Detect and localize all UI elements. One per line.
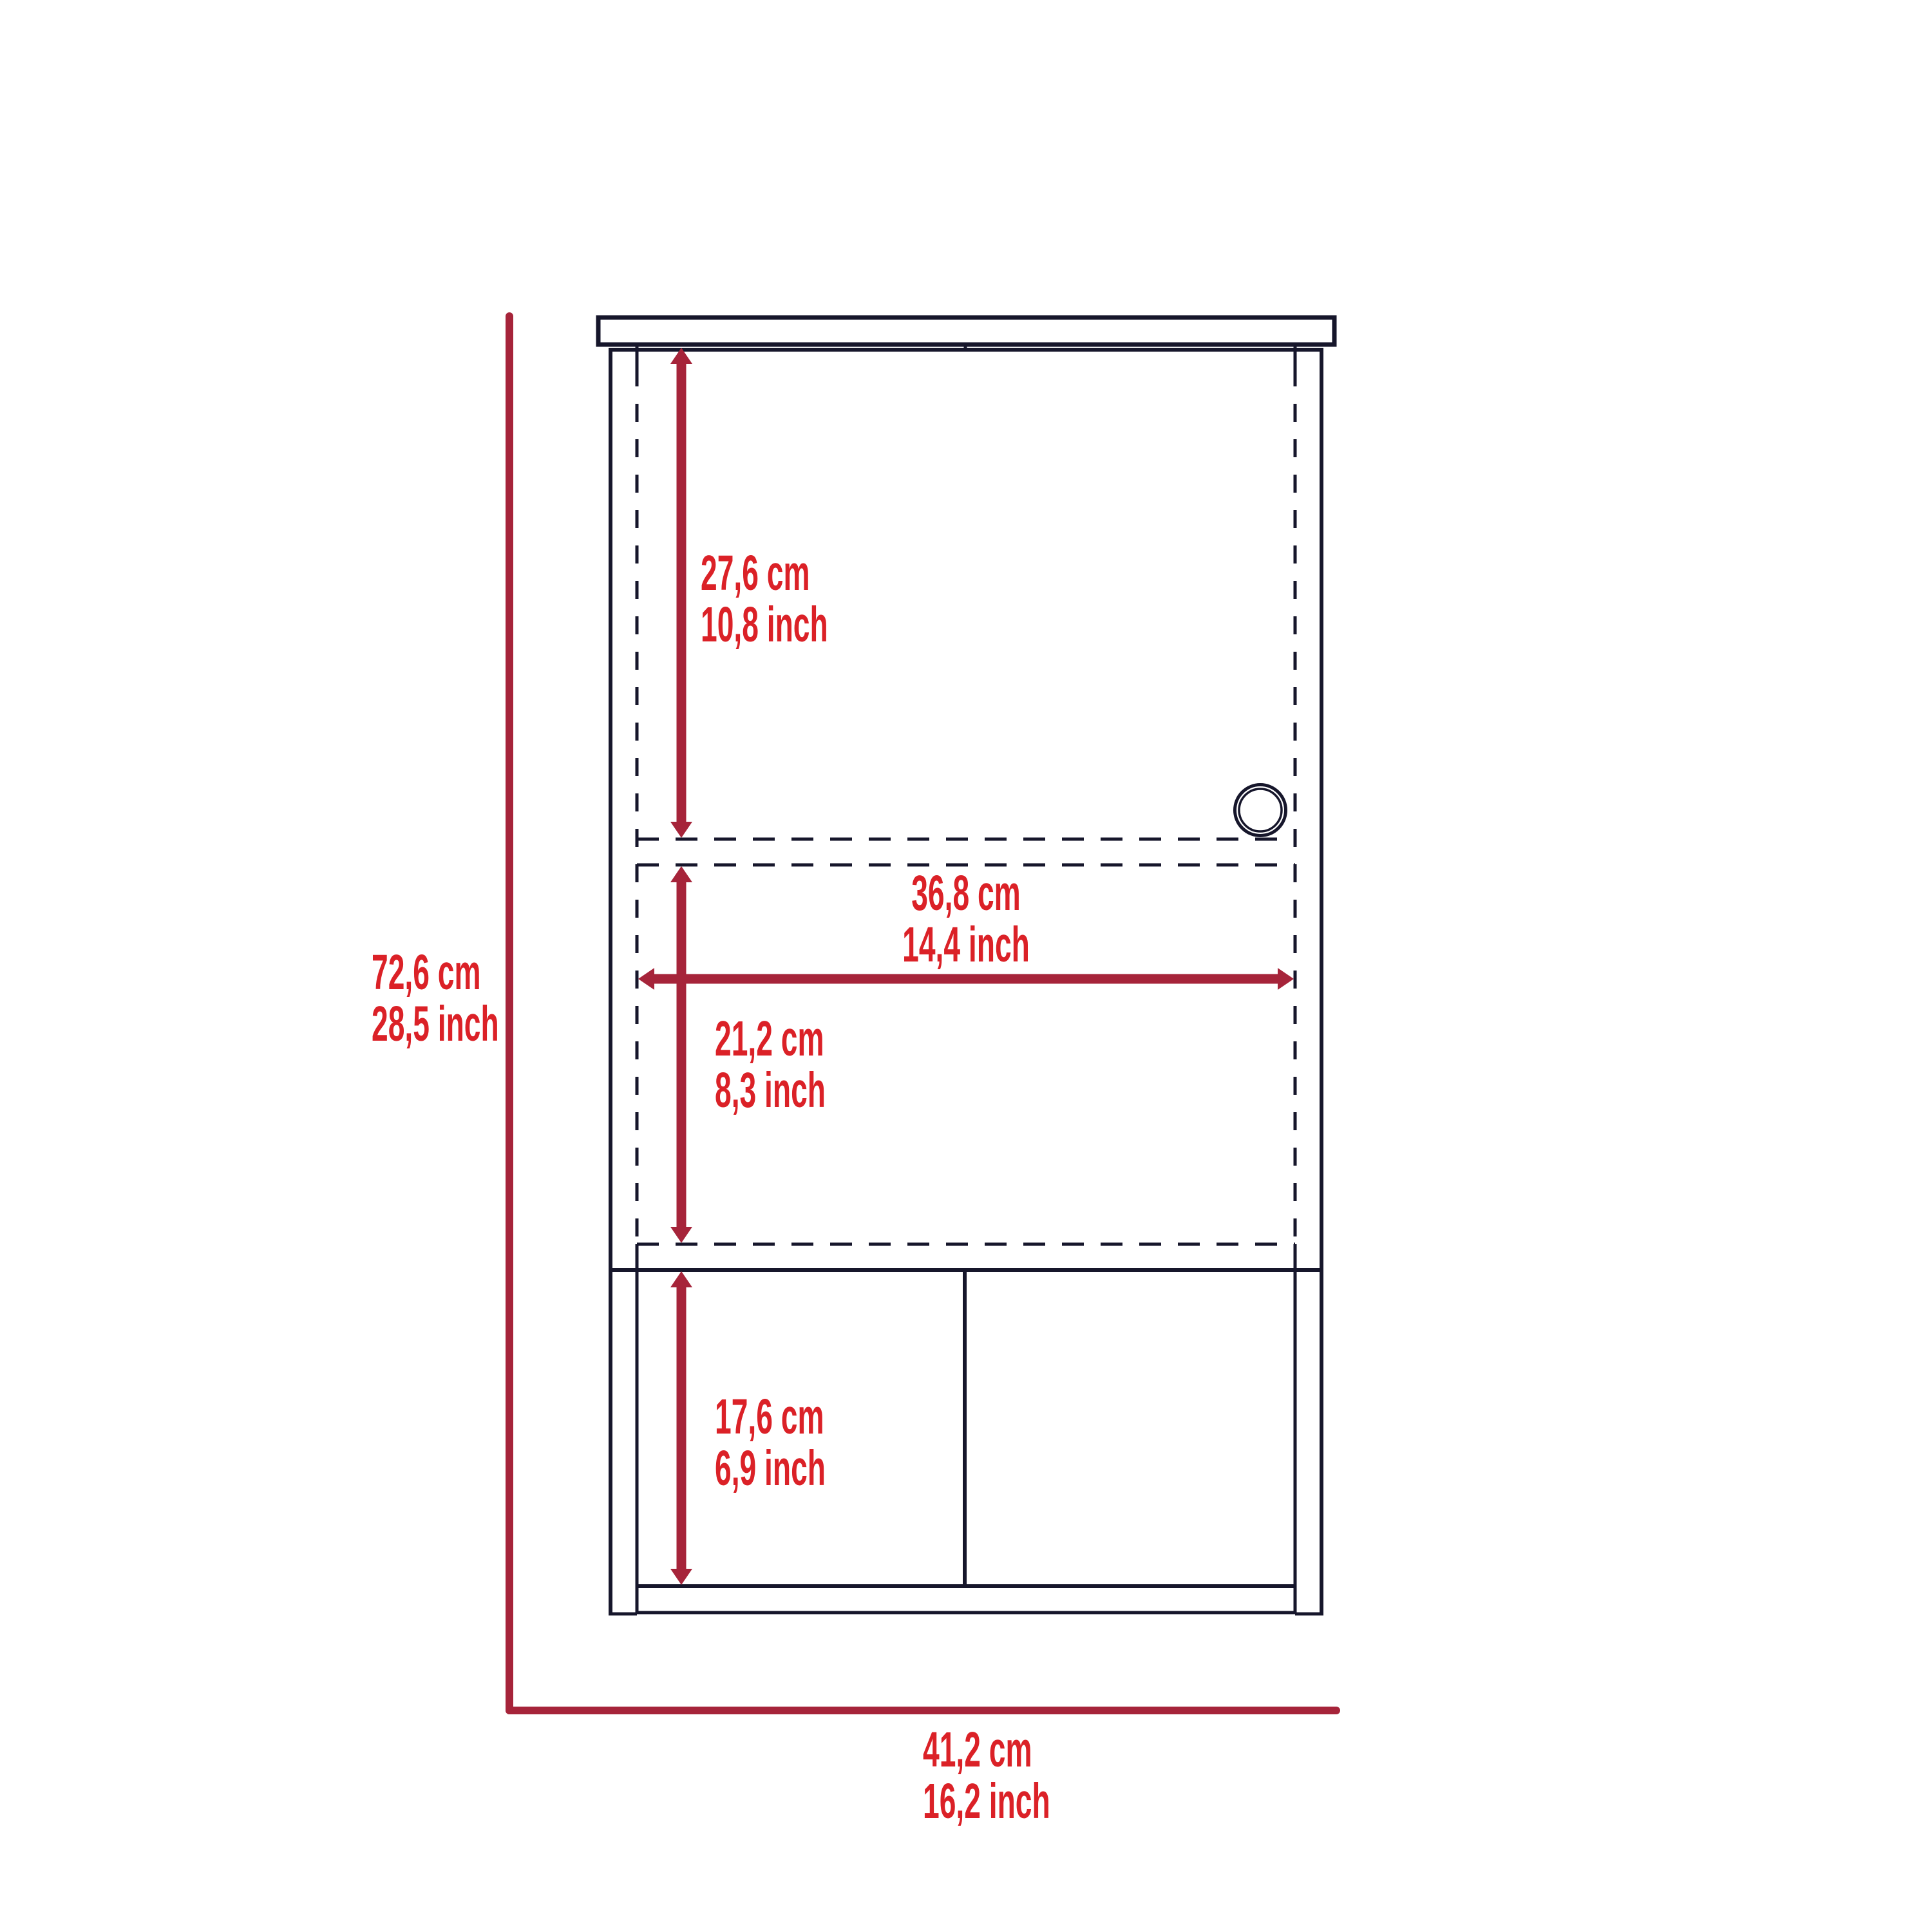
dim-label-overall-height: 72,6 cm 28,5 inch	[372, 947, 499, 1050]
lower-section-cm-value: 17,6 cm	[715, 1391, 826, 1443]
overall-height-inch-value: 28,5 inch	[372, 998, 499, 1050]
upper-section-inch-value: 10,8 inch	[701, 599, 828, 650]
dim-label-middle-section-height: 21,2 cm 8,3 inch	[715, 1013, 826, 1116]
dim-label-lower-section-height: 17,6 cm 6,9 inch	[715, 1391, 826, 1494]
dim-label-upper-section-height: 27,6 cm 10,8 inch	[701, 547, 828, 650]
interior-width-cm-value: 36,8 cm	[869, 867, 1063, 919]
interior-width-inch-value: 14,4 inch	[869, 919, 1063, 971]
overall-width-cm-value: 41,2 cm	[923, 1724, 1050, 1776]
lower-section-inch-value: 6,9 inch	[715, 1443, 826, 1494]
dim-arrow-middle-section	[670, 866, 692, 1243]
upper-section-cm-value: 27,6 cm	[701, 547, 828, 599]
cabinet-dimension-diagram: 72,6 cm 28,5 inch 27,6 cm 10,8 inch 36,8…	[0, 0, 1932, 1932]
dim-arrow-lower-section	[670, 1271, 692, 1585]
overall-width-inch-value: 16,2 inch	[923, 1776, 1050, 1827]
top-panel	[598, 317, 1334, 345]
dimension-lines	[509, 316, 1336, 1710]
dim-label-overall-width: 41,2 cm 16,2 inch	[923, 1724, 1050, 1827]
overall-height-cm-value: 72,6 cm	[372, 947, 499, 998]
middle-section-cm-value: 21,2 cm	[715, 1013, 826, 1065]
dim-label-interior-width: 36,8 cm 14,4 inch	[869, 867, 1063, 971]
middle-section-inch-value: 8,3 inch	[715, 1065, 826, 1116]
knob-icon	[1235, 785, 1286, 836]
dim-arrow-upper-section	[670, 348, 692, 838]
